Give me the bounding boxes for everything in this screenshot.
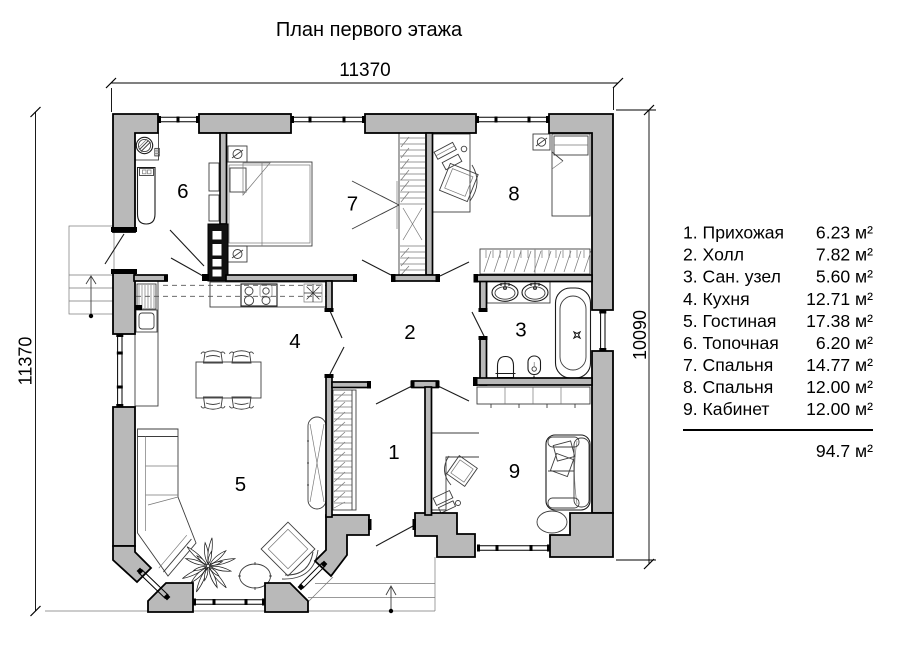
svg-text:7.82 м²: 7.82 м² bbox=[816, 245, 873, 265]
svg-text:7. Спальня: 7. Спальня bbox=[683, 355, 773, 375]
svg-text:11370: 11370 bbox=[339, 60, 390, 81]
svg-text:6: 6 bbox=[177, 180, 188, 203]
svg-text:4: 4 bbox=[289, 330, 300, 353]
svg-text:6. Топочная: 6. Топочная bbox=[683, 333, 779, 353]
svg-text:План первого этажа: План первого этажа bbox=[276, 19, 463, 41]
svg-text:11370: 11370 bbox=[16, 337, 36, 386]
svg-text:8. Спальня: 8. Спальня bbox=[683, 377, 773, 397]
svg-text:5. Гостиная: 5. Гостиная bbox=[683, 311, 776, 331]
svg-text:94.7 м²: 94.7 м² bbox=[816, 441, 873, 461]
svg-text:2: 2 bbox=[404, 321, 415, 344]
svg-text:10090: 10090 bbox=[630, 310, 650, 360]
svg-text:3: 3 bbox=[515, 319, 526, 342]
svg-text:8: 8 bbox=[508, 183, 519, 206]
svg-text:2. Холл: 2. Холл bbox=[683, 245, 744, 265]
svg-text:7: 7 bbox=[347, 193, 358, 216]
svg-text:1: 1 bbox=[388, 441, 399, 464]
svg-text:6.23 м²: 6.23 м² bbox=[816, 223, 873, 243]
svg-text:12.00 м²: 12.00 м² bbox=[806, 377, 873, 397]
svg-text:6.20 м²: 6.20 м² bbox=[816, 333, 873, 353]
svg-text:1. Прихожая: 1. Прихожая bbox=[683, 223, 784, 243]
svg-text:17.38 м²: 17.38 м² bbox=[806, 311, 873, 331]
svg-text:5: 5 bbox=[235, 473, 246, 496]
svg-text:3. Сан. узел: 3. Сан. узел bbox=[683, 267, 781, 287]
svg-text:9. Кабинет: 9. Кабинет bbox=[683, 399, 769, 419]
svg-text:5.60 м²: 5.60 м² bbox=[816, 267, 873, 287]
svg-text:9: 9 bbox=[509, 460, 520, 483]
svg-text:12.00 м²: 12.00 м² bbox=[806, 399, 873, 419]
svg-text:12.71 м²: 12.71 м² bbox=[806, 289, 873, 309]
svg-text:4. Кухня: 4. Кухня bbox=[683, 289, 750, 309]
svg-text:14.77 м²: 14.77 м² bbox=[806, 355, 873, 375]
